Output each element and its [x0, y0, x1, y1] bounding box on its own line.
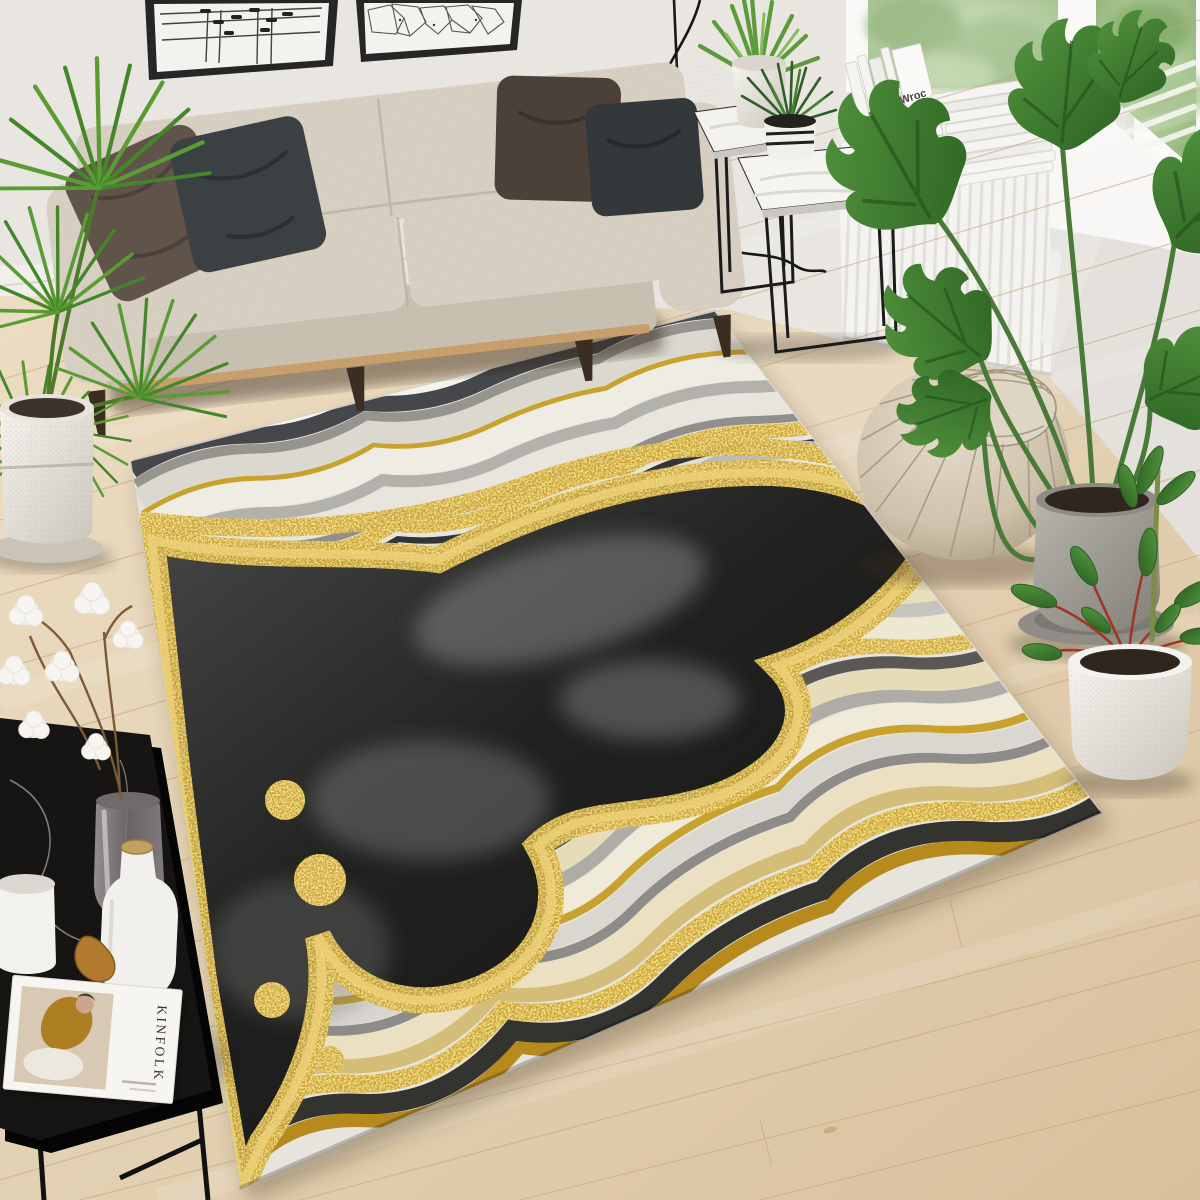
plant-soil [1080, 649, 1180, 675]
pillow-slate [584, 97, 704, 217]
palm-pot-soil [9, 398, 85, 418]
living-room-scene: Wroc [0, 0, 1200, 1200]
kinfolk-magazine: KINFOLK [3, 975, 187, 1108]
white-cup [0, 874, 56, 974]
scene-canvas: Wroc [0, 0, 1200, 1200]
cork-lid [121, 840, 153, 854]
pillow-charcoal [167, 113, 329, 275]
